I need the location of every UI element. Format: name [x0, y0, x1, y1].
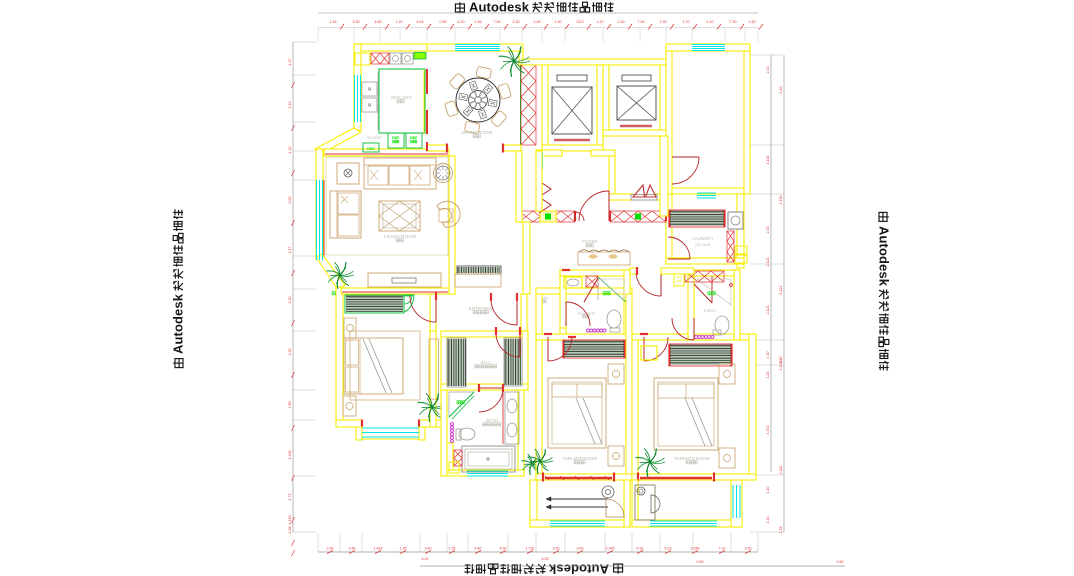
svg-text:4.410: 4.410: [288, 516, 292, 525]
svg-text:4.10: 4.10: [766, 352, 770, 359]
svg-text:3.30: 3.30: [353, 20, 360, 24]
svg-text:5.33: 5.33: [637, 547, 644, 551]
svg-text:1.20: 1.20: [766, 372, 770, 379]
svg-text:0.60: 0.60: [837, 560, 844, 564]
svg-text:1.25: 1.25: [400, 547, 407, 551]
svg-text:REF.: REF.: [410, 136, 418, 140]
svg-text:ST.KEEP: ST.KEEP: [367, 136, 383, 140]
svg-text:ENTRANCE: ENTRANCE: [469, 306, 494, 311]
svg-text:4.431: 4.431: [766, 426, 770, 435]
svg-text:4.20: 4.20: [458, 20, 465, 24]
svg-text:4.110: 4.110: [779, 466, 783, 475]
svg-text:2.121: 2.121: [766, 306, 770, 315]
svg-text:4.130: 4.130: [766, 156, 770, 165]
svg-text:2.30: 2.30: [618, 20, 625, 24]
svg-text:6.20: 6.20: [422, 557, 429, 561]
svg-text:REF.: REF.: [392, 136, 400, 140]
svg-text:4.83: 4.83: [375, 20, 382, 24]
svg-text:3.40: 3.40: [425, 547, 432, 551]
svg-text:1.20: 1.20: [597, 20, 604, 24]
svg-text:W.I.C: W.I.C: [481, 360, 493, 365]
svg-text:4.130: 4.130: [779, 196, 783, 205]
svg-text:23.0: 23.0: [577, 20, 584, 24]
svg-text:GIRL BEDROOM: GIRL BEDROOM: [563, 456, 597, 461]
svg-text:0.60: 0.60: [697, 560, 704, 564]
svg-text:FOYER: FOYER: [582, 239, 598, 244]
svg-text:Autodesk: Autodesk: [469, 0, 530, 15]
svg-text:2.36: 2.36: [475, 20, 482, 24]
svg-text:2.20: 2.20: [766, 227, 770, 234]
svg-text:5.40: 5.40: [475, 547, 482, 551]
svg-text:1.433: 1.433: [374, 547, 383, 551]
svg-text:2.45: 2.45: [534, 20, 541, 24]
svg-text:7.30: 7.30: [638, 20, 645, 24]
svg-text:2.40: 2.40: [779, 87, 783, 94]
svg-text:7.30: 7.30: [494, 20, 501, 24]
svg-text:1.730: 1.730: [526, 547, 535, 551]
svg-text:4.20: 4.20: [288, 349, 292, 356]
svg-text:1.20: 1.20: [396, 20, 403, 24]
svg-text:DINING ROOM: DINING ROOM: [462, 130, 493, 135]
svg-text:4.53: 4.53: [417, 20, 424, 24]
svg-text:1.10: 1.10: [766, 487, 770, 494]
svg-text:2.30: 2.30: [749, 20, 756, 24]
svg-text:2.30: 2.30: [660, 20, 667, 24]
svg-text:3.30: 3.30: [745, 547, 752, 551]
svg-text:PARENTS ROOM: PARENTS ROOM: [674, 456, 710, 461]
svg-text:1.430: 1.430: [288, 451, 292, 460]
svg-text:0.62: 0.62: [288, 197, 292, 204]
svg-text:4.10: 4.10: [288, 147, 292, 154]
svg-text:3.30: 3.30: [327, 547, 334, 551]
svg-text:2.30: 2.30: [555, 20, 562, 24]
svg-text:7.10: 7.10: [719, 547, 726, 551]
svg-text:2.10: 2.10: [766, 67, 770, 74]
svg-text:1.25: 1.25: [779, 527, 783, 534]
svg-text:0.90: 0.90: [440, 20, 447, 24]
svg-text:1.40: 1.40: [766, 517, 770, 524]
svg-text:7.30: 7.30: [730, 20, 737, 24]
svg-text:4.10: 4.10: [707, 20, 714, 24]
svg-text:4.50: 4.50: [288, 402, 292, 409]
svg-text:3.20: 3.20: [288, 297, 292, 304]
svg-text:1.71: 1.71: [288, 494, 292, 501]
svg-text:2.345: 2.345: [606, 547, 615, 551]
svg-text:WOK.SET: WOK.SET: [391, 95, 412, 100]
svg-text:9.45: 9.45: [349, 547, 356, 551]
svg-text:2.345: 2.345: [691, 547, 700, 551]
svg-text:Autodesk: Autodesk: [548, 561, 609, 576]
svg-text:P.BATH: P.BATH: [704, 309, 716, 313]
svg-text:9.00: 9.00: [577, 547, 584, 551]
svg-text:Autodesk: Autodesk: [171, 293, 186, 354]
svg-text:6.25: 6.25: [542, 557, 549, 561]
svg-text:2.28: 2.28: [288, 527, 292, 534]
svg-text:(Cb.?b.B): (Cb.?b.B): [695, 243, 710, 247]
svg-text:4.17: 4.17: [288, 59, 292, 66]
svg-text:1.10: 1.10: [288, 102, 292, 109]
svg-text:4.17: 4.17: [288, 247, 292, 254]
svg-text:DEG: DEG: [367, 147, 375, 151]
svg-text:3.30: 3.30: [553, 547, 560, 551]
svg-text:BATH: BATH: [486, 418, 498, 423]
svg-text:2.121: 2.121: [766, 258, 770, 267]
svg-text:2.30: 2.30: [513, 20, 520, 24]
svg-text:1.25: 1.25: [449, 547, 456, 551]
svg-text:1.70: 1.70: [683, 20, 690, 24]
svg-text:1.35: 1.35: [330, 20, 337, 24]
svg-text:5.33: 5.33: [665, 547, 672, 551]
svg-text:6.121: 6.121: [779, 286, 783, 295]
svg-text:Autodesk: Autodesk: [876, 226, 891, 287]
svg-text:4.50: 4.50: [500, 547, 507, 551]
svg-text:LAUNDRY: LAUNDRY: [692, 236, 713, 241]
